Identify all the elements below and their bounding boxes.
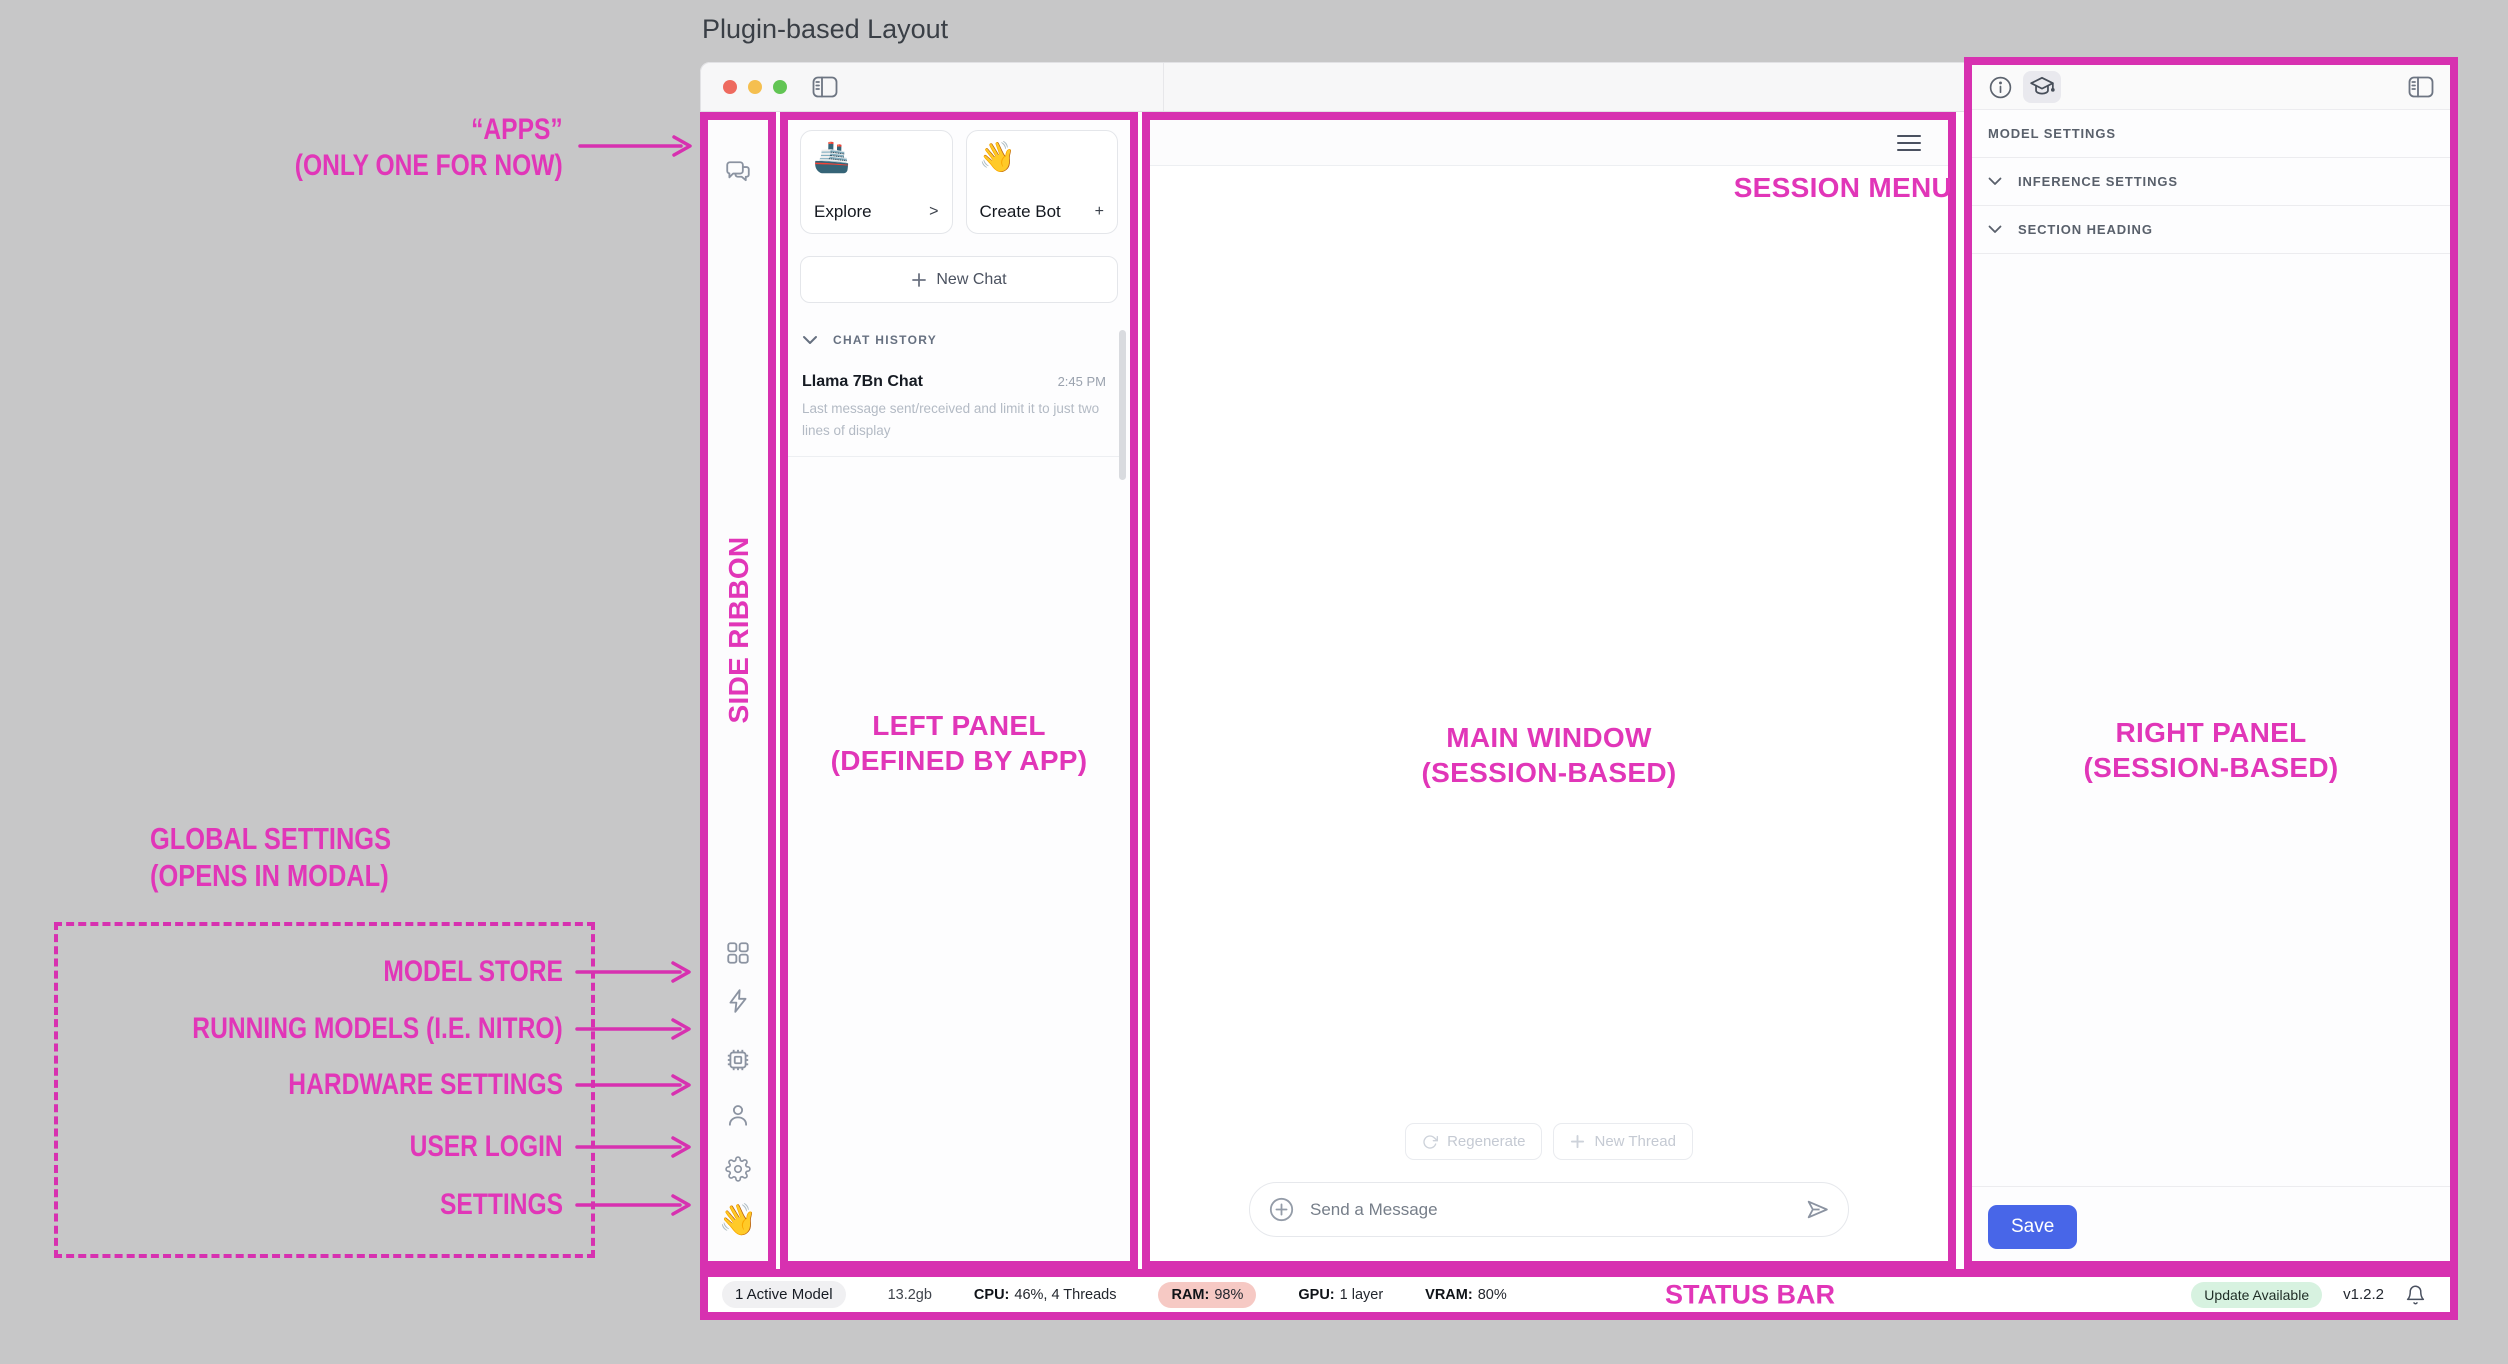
chat-history-section-header[interactable]: CHAT HISTORY bbox=[802, 333, 937, 347]
active-model-badge: 1 Active Model bbox=[722, 1281, 846, 1308]
settings-annotation: SETTINGS bbox=[440, 1187, 563, 1223]
left-panel-annotation: LEFT PANEL (DEFINED BY APP) bbox=[788, 708, 1130, 779]
session-menu-annotation: SESSION MENU bbox=[1734, 172, 1952, 204]
new-thread-button[interactable]: New Thread bbox=[1553, 1123, 1692, 1160]
regenerate-button[interactable]: Regenerate bbox=[1405, 1123, 1542, 1160]
chevron-down-icon bbox=[802, 335, 818, 346]
plus-icon bbox=[911, 272, 927, 288]
create-bot-card-label: Create Bot bbox=[980, 202, 1061, 222]
left-panel: 🚢 Explore > 👋 Create Bot + New Chat CHAT… bbox=[780, 112, 1138, 1269]
chevron-down-icon bbox=[1988, 225, 2002, 234]
ram-stat-badge: RAM:98% bbox=[1158, 1282, 1256, 1308]
chevron-right-glyph: > bbox=[929, 203, 938, 221]
explore-card-label: Explore bbox=[814, 202, 872, 222]
new-chat-button[interactable]: New Chat bbox=[800, 256, 1118, 303]
chat-history-item[interactable]: Llama 7Bn Chat 2:45 PM Last message sent… bbox=[788, 360, 1120, 457]
wave-emoji-icon[interactable]: 👋 bbox=[719, 1204, 758, 1235]
page-title: Plugin-based Layout bbox=[702, 14, 948, 45]
apps-annotation: “APPS” (ONLY ONE FOR NOW) bbox=[295, 112, 563, 184]
message-input-container bbox=[1249, 1182, 1849, 1237]
titlebar-divider bbox=[1163, 63, 1164, 111]
minimize-window-button[interactable] bbox=[748, 80, 762, 94]
user-login-annotation: USER LOGIN bbox=[410, 1129, 563, 1165]
wave-emoji-icon: 👋 bbox=[979, 143, 1106, 173]
model-store-annotation: MODEL STORE bbox=[383, 954, 563, 990]
chat-app-icon[interactable] bbox=[724, 160, 752, 191]
session-menu-icon[interactable] bbox=[1896, 133, 1922, 153]
plus-glyph: + bbox=[1095, 203, 1104, 221]
design-canvas: Plugin-based Layout 👋 bbox=[0, 0, 2508, 1364]
model-store-icon[interactable] bbox=[725, 940, 751, 971]
inference-settings-row[interactable]: INFERENCE SETTINGS bbox=[1972, 158, 2450, 206]
main-window: SESSION MENU MAIN WINDOW (SESSION-BASED)… bbox=[1142, 112, 1956, 1269]
section-heading-row[interactable]: SECTION HEADING bbox=[1972, 206, 2450, 254]
main-window-header bbox=[1150, 120, 1948, 166]
gpu-stat: GPU:1 layer bbox=[1298, 1287, 1383, 1303]
explore-card[interactable]: 🚢 Explore > bbox=[800, 130, 953, 234]
close-window-button[interactable] bbox=[723, 80, 737, 94]
running-models-annotation: RUNNING MODELS (I.E. NITRO) bbox=[193, 1011, 563, 1047]
app-version: v1.2.2 bbox=[2343, 1286, 2384, 1303]
message-input[interactable] bbox=[1308, 1199, 1792, 1221]
right-panel-header bbox=[1972, 65, 2450, 110]
ship-emoji-icon: 🚢 bbox=[813, 143, 940, 173]
status-bar-annotation: STATUS BAR bbox=[1665, 1279, 1835, 1310]
main-window-annotation: MAIN WINDOW (SESSION-BASED) bbox=[1150, 720, 1948, 791]
arrow-model-store bbox=[575, 959, 697, 985]
toggle-right-sidebar-icon[interactable] bbox=[2408, 76, 2434, 98]
running-models-icon[interactable] bbox=[725, 988, 751, 1019]
attach-plus-icon[interactable] bbox=[1268, 1196, 1295, 1223]
right-panel-footer-divider bbox=[1972, 1186, 2450, 1187]
assistant-graduation-cap-icon[interactable] bbox=[2023, 71, 2061, 103]
side-ribbon-annotation: SIDE RIBBON bbox=[723, 537, 755, 724]
status-bar: 1 Active Model 13.2gb CPU:46%, 4 Threads… bbox=[700, 1269, 2458, 1320]
send-icon[interactable] bbox=[1805, 1197, 1830, 1222]
refresh-icon bbox=[1422, 1134, 1438, 1150]
settings-gear-icon[interactable] bbox=[725, 1156, 751, 1187]
info-icon[interactable] bbox=[1988, 75, 2013, 100]
chat-title: Llama 7Bn Chat bbox=[802, 373, 923, 391]
hardware-settings-annotation: HARDWARE SETTINGS bbox=[288, 1067, 563, 1103]
arrow-user-login bbox=[575, 1134, 697, 1160]
chevron-down-icon bbox=[1988, 177, 2002, 186]
notifications-bell-icon[interactable] bbox=[2405, 1284, 2426, 1306]
arrow-settings bbox=[575, 1192, 697, 1218]
arrow-hardware-settings bbox=[575, 1072, 697, 1098]
left-panel-scrollbar[interactable] bbox=[1119, 330, 1126, 480]
cpu-stat: CPU:46%, 4 Threads bbox=[974, 1287, 1117, 1303]
disk-usage: 13.2gb bbox=[888, 1287, 932, 1303]
hardware-settings-icon[interactable] bbox=[725, 1047, 751, 1078]
chat-preview: Last message sent/received and limit it … bbox=[802, 398, 1120, 441]
vram-stat: VRAM:80% bbox=[1425, 1287, 1507, 1303]
zoom-window-button[interactable] bbox=[773, 80, 787, 94]
arrow-running-models bbox=[575, 1016, 697, 1042]
global-settings-annotation: GLOBAL SETTINGS (OPENS IN MODAL) bbox=[150, 820, 391, 894]
model-settings-section: MODEL SETTINGS bbox=[1972, 110, 2450, 158]
plus-icon bbox=[1570, 1134, 1585, 1149]
user-login-icon[interactable] bbox=[725, 1102, 751, 1133]
create-bot-card[interactable]: 👋 Create Bot + bbox=[966, 130, 1119, 234]
right-panel-annotation: RIGHT PANEL (SESSION-BASED) bbox=[1972, 715, 2450, 786]
save-button[interactable]: Save bbox=[1988, 1205, 2077, 1249]
chat-timestamp: 2:45 PM bbox=[1058, 374, 1106, 389]
toggle-left-sidebar-icon[interactable] bbox=[812, 76, 838, 98]
right-panel: MODEL SETTINGS INFERENCE SETTINGS SECTIO… bbox=[1964, 57, 2458, 1269]
arrow-apps bbox=[578, 133, 698, 159]
update-available-badge[interactable]: Update Available bbox=[2191, 1282, 2322, 1308]
